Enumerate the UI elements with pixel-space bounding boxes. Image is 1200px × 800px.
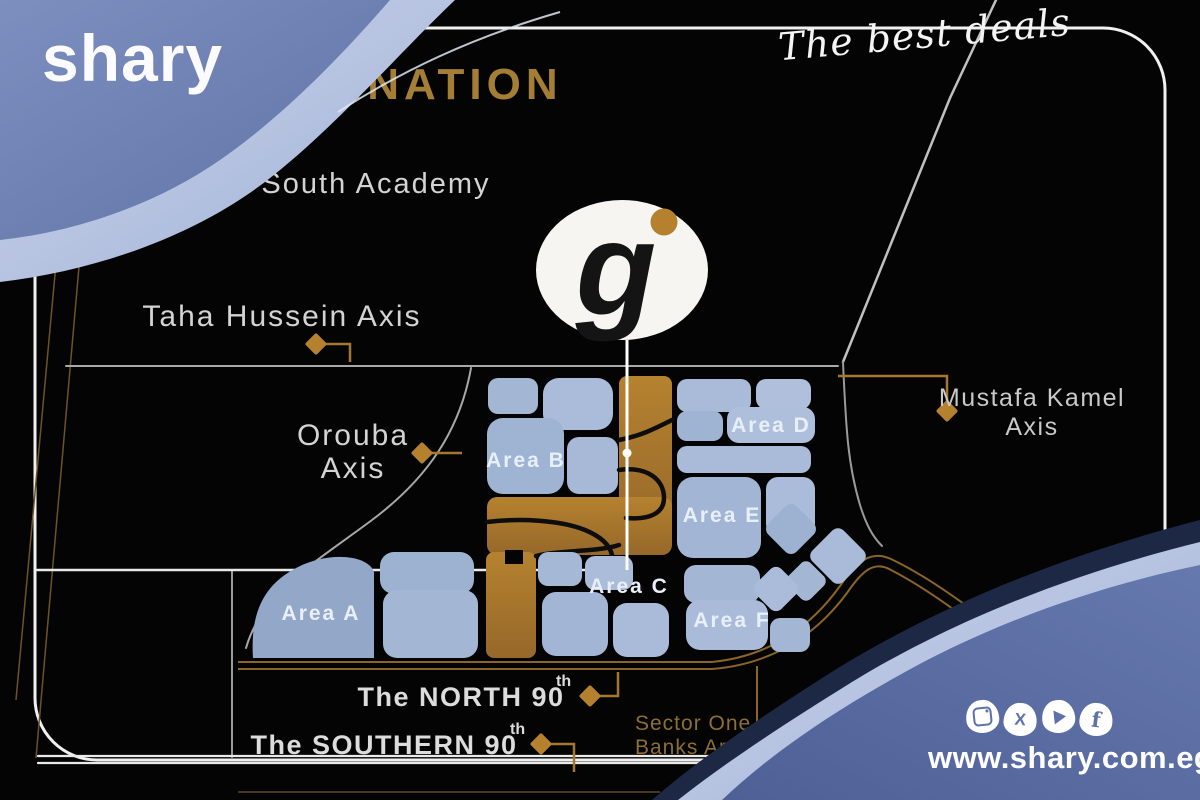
x-icon[interactable]: X (1002, 702, 1038, 738)
social-links: X f (966, 700, 1113, 733)
poster: g INATION South Academy Taha Hussein Axi… (0, 0, 1200, 800)
instagram-icon[interactable] (964, 698, 1000, 734)
facebook-icon[interactable]: f (1078, 701, 1115, 738)
facebook-glyph: f (1090, 707, 1102, 733)
shary-logo: shary (42, 20, 223, 96)
decor-waves (0, 0, 1200, 800)
youtube-icon[interactable] (1040, 698, 1076, 734)
x-glyph: X (1014, 709, 1027, 730)
website-url[interactable]: www.shary.com.eg (928, 740, 1200, 776)
